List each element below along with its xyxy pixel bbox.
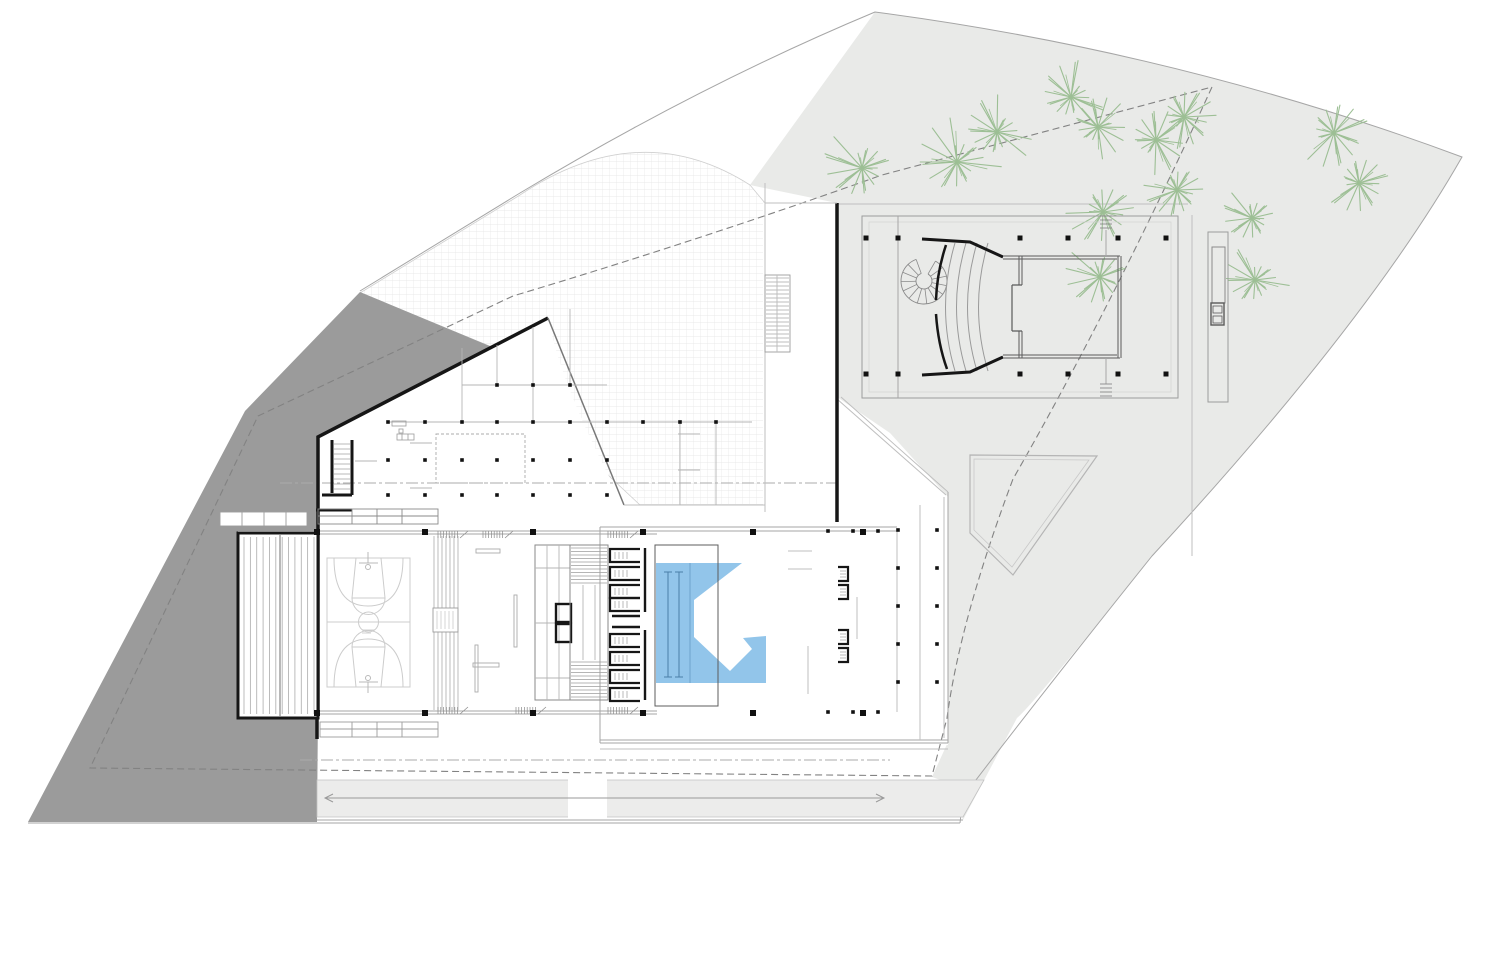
south-road <box>317 778 984 819</box>
site-plan-drawing <box>0 0 1500 958</box>
floor-plan-canvas <box>0 0 1500 958</box>
west-bleacher-block <box>238 533 318 718</box>
